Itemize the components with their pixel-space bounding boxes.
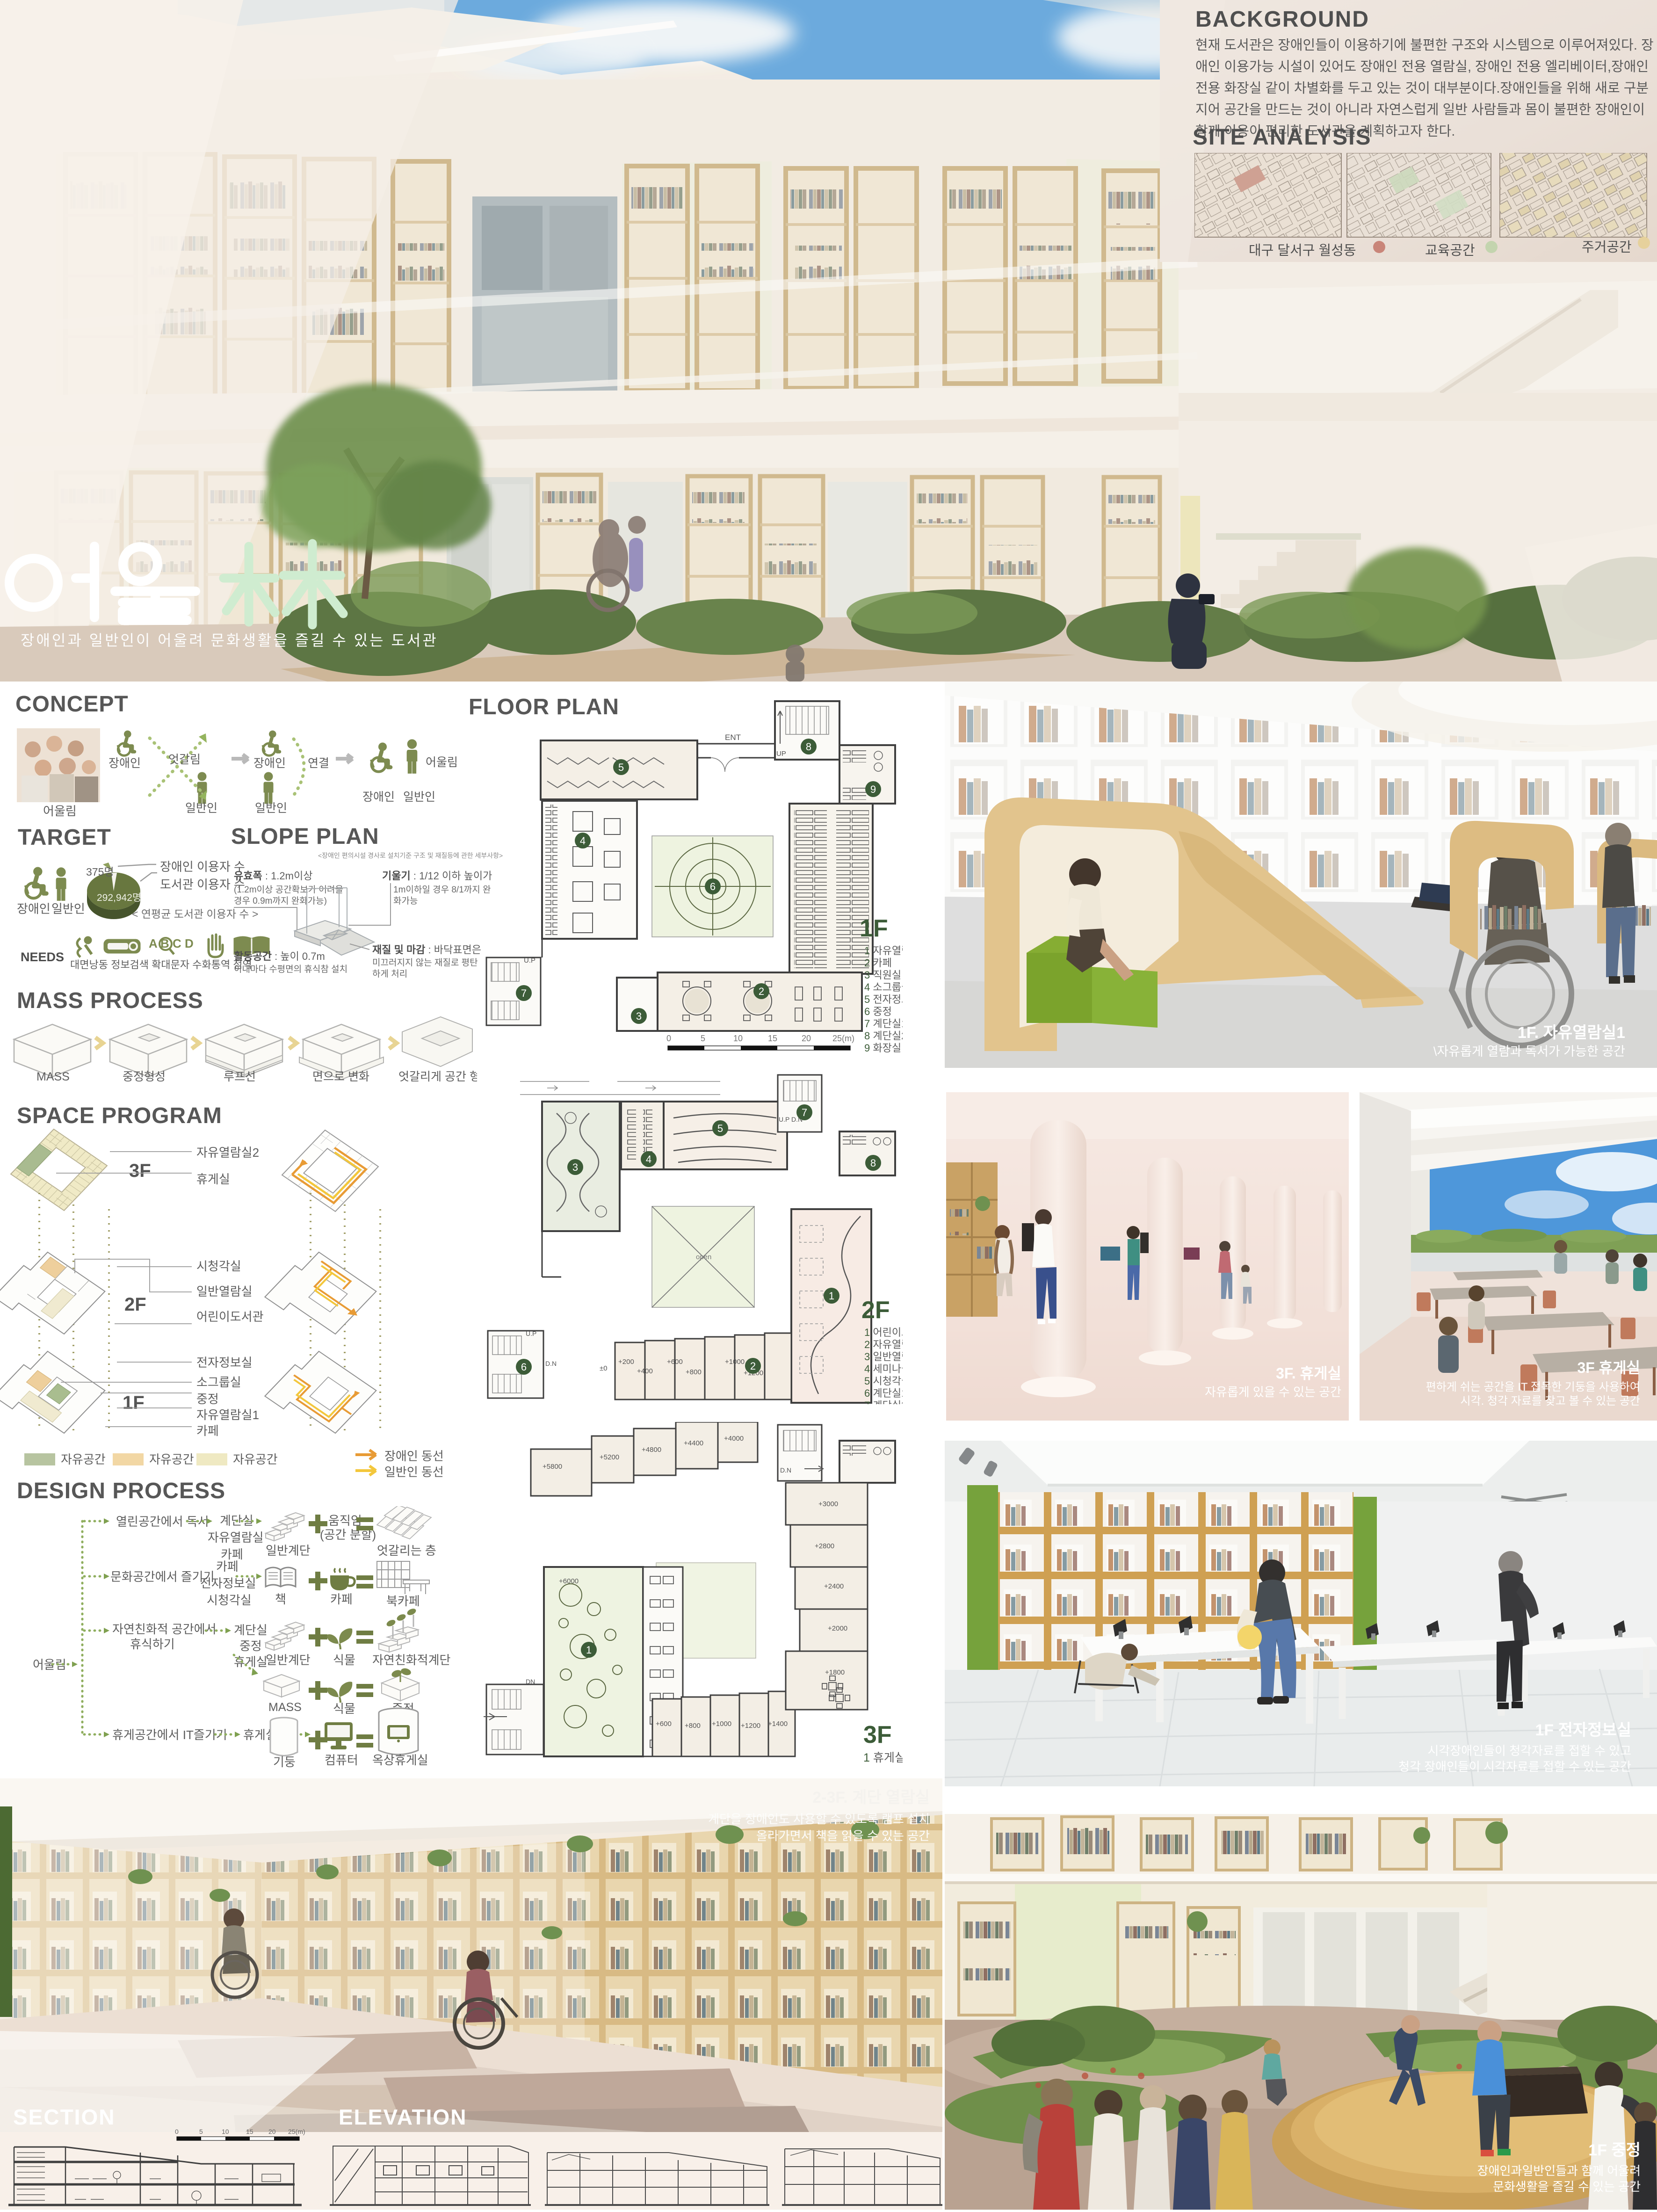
svg-text:1 휴게실: 1 휴게실 bbox=[863, 1751, 903, 1764]
svg-text:자유열람실: 자유열람실 bbox=[208, 1530, 264, 1545]
svg-text:292,942명: 292,942명 bbox=[97, 892, 141, 903]
svg-text:자유공간: 자유공간 bbox=[149, 1452, 194, 1466]
svg-text:0: 0 bbox=[666, 1034, 671, 1043]
svg-text:+5200: +5200 bbox=[600, 1453, 619, 1461]
svg-text:7 계단실1: 7 계단실1 bbox=[864, 1018, 903, 1030]
svg-text:9 화장실: 9 화장실 bbox=[864, 1042, 901, 1054]
svg-text:+4800: +4800 bbox=[642, 1446, 661, 1454]
svg-text:7: 7 bbox=[802, 1107, 807, 1118]
svg-text:자유공간: 자유공간 bbox=[61, 1452, 106, 1466]
svg-text:3F: 3F bbox=[129, 1160, 151, 1181]
svg-text:일반인: 일반인 bbox=[403, 791, 435, 804]
svg-text:면으로 변화: 면으로 변화 bbox=[312, 1070, 369, 1083]
svg-text:2-3F. 계단 열람실: 2-3F. 계단 열람실 bbox=[812, 1789, 930, 1806]
svg-text:장애인: 장애인 bbox=[17, 902, 51, 916]
svg-text:6 계단실1: 6 계단실1 bbox=[864, 1387, 903, 1399]
svg-text:20: 20 bbox=[802, 1034, 811, 1043]
svg-text:+400: +400 bbox=[637, 1367, 653, 1375]
svg-text:+1200: +1200 bbox=[741, 1722, 760, 1730]
svg-text:문화공간에서 즐기기: 문화공간에서 즐기기 bbox=[110, 1570, 215, 1584]
svg-text:일반인: 일반인 bbox=[185, 802, 217, 815]
svg-text:경우 0.9m까지 완화가능): 경우 0.9m까지 완화가능) bbox=[234, 896, 327, 906]
svg-text:북카페: 북카페 bbox=[386, 1594, 420, 1608]
svg-text:연결: 연결 bbox=[308, 757, 329, 770]
svg-text:6 중정: 6 중정 bbox=[864, 1006, 892, 1017]
svg-text:25(m): 25(m) bbox=[288, 2128, 305, 2135]
svg-text:4 소그룹실: 4 소그룹실 bbox=[864, 981, 903, 993]
svg-text:+800: +800 bbox=[685, 1722, 701, 1730]
svg-text:3F: 3F bbox=[863, 1721, 892, 1748]
svg-text:1F. 자유열람실1: 1F. 자유열람실1 bbox=[1518, 1024, 1625, 1042]
svg-text:휴식하기: 휴식하기 bbox=[130, 1637, 175, 1651]
svg-text:이내마다 수평면의 휴식참 설치: 이내마다 수평면의 휴식참 설치 bbox=[234, 964, 347, 974]
svg-text:장애인 동선: 장애인 동선 bbox=[384, 1449, 444, 1463]
svg-text:기둥: 기둥 bbox=[273, 1755, 296, 1769]
svg-text:10: 10 bbox=[733, 1034, 743, 1043]
svg-text:0: 0 bbox=[175, 2128, 179, 2135]
svg-text:ELEVATION: ELEVATION bbox=[339, 2105, 467, 2129]
svg-text:25(m): 25(m) bbox=[832, 1034, 854, 1043]
svg-text:기울기 : 1/12 이하 높이가: 기울기 : 1/12 이하 높이가 bbox=[382, 870, 492, 882]
svg-text:일반인 동선: 일반인 동선 bbox=[384, 1465, 444, 1479]
svg-text:1F 중정: 1F 중정 bbox=[1588, 2141, 1641, 2159]
svg-text:8: 8 bbox=[806, 741, 811, 753]
svg-text:4: 4 bbox=[646, 1153, 651, 1165]
svg-text:5: 5 bbox=[618, 762, 624, 773]
svg-text:1: 1 bbox=[829, 1290, 834, 1302]
svg-text:MASS: MASS bbox=[268, 1701, 302, 1714]
svg-text:어울림: 어울림 bbox=[426, 756, 458, 769]
svg-text:+5800: +5800 bbox=[543, 1463, 562, 1471]
svg-text:3F. 휴게실: 3F. 휴게실 bbox=[1276, 1365, 1341, 1382]
svg-text:열린공간에서 독서: 열린공간에서 독서 bbox=[116, 1515, 209, 1529]
svg-text:9: 9 bbox=[870, 783, 876, 795]
svg-text:일반인: 일반인 bbox=[51, 902, 85, 916]
svg-text:시청각실: 시청각실 bbox=[196, 1259, 241, 1273]
svg-text:+600: +600 bbox=[667, 1358, 683, 1366]
svg-text:+4400: +4400 bbox=[684, 1439, 703, 1447]
svg-text:2 카페: 2 카페 bbox=[864, 957, 892, 969]
svg-text:계단을 장애인도 사용할 수 있도록 램프 설치: 계단을 장애인도 사용할 수 있도록 램프 설치 bbox=[708, 1812, 930, 1826]
svg-text:ENT: ENT bbox=[725, 733, 741, 742]
svg-text:20: 20 bbox=[268, 2128, 276, 2135]
svg-text:8 계단실2: 8 계단실2 bbox=[864, 1030, 903, 1042]
svg-text:식물: 식물 bbox=[333, 1653, 355, 1667]
svg-text:+600: +600 bbox=[656, 1720, 672, 1728]
svg-text:3 직원실: 3 직원실 bbox=[864, 969, 901, 981]
svg-text:+1800: +1800 bbox=[825, 1668, 845, 1676]
svg-text:MASS: MASS bbox=[36, 1070, 70, 1083]
svg-text:2 자유열람실2: 2 자유열람실2 bbox=[864, 1339, 903, 1350]
svg-text:8: 8 bbox=[870, 1157, 876, 1169]
svg-text:컴퓨터: 컴퓨터 bbox=[325, 1753, 358, 1767]
svg-text:5 전자정보실: 5 전자정보실 bbox=[864, 994, 903, 1005]
svg-text:자연친화적 공간에서: 자연친화적 공간에서 bbox=[112, 1622, 217, 1636]
svg-text:+3000: +3000 bbox=[818, 1500, 838, 1508]
svg-text:2: 2 bbox=[750, 1360, 756, 1372]
svg-text:NEEDS: NEEDS bbox=[21, 950, 64, 964]
svg-text:장애인: 장애인 bbox=[109, 757, 141, 770]
svg-text:6: 6 bbox=[710, 881, 716, 892]
svg-text:자유공간: 자유공간 bbox=[233, 1452, 278, 1466]
svg-text:6: 6 bbox=[521, 1361, 527, 1373]
svg-text:7 계단실2: 7 계단실2 bbox=[864, 1400, 903, 1404]
svg-text:계단실: 계단실 bbox=[234, 1623, 268, 1637]
svg-text:옥상휴게실: 옥상휴게실 bbox=[372, 1753, 428, 1767]
svg-text:+2800: +2800 bbox=[815, 1542, 834, 1550]
svg-text:자유롭게 있을 수 있는 공간: 자유롭게 있을 수 있는 공간 bbox=[1205, 1385, 1341, 1399]
svg-text:휴게실: 휴게실 bbox=[234, 1655, 268, 1669]
svg-text:D.N: D.N bbox=[545, 1360, 557, 1367]
svg-text:±0: ±0 bbox=[600, 1364, 608, 1372]
svg-text:유효폭 : 1.2m이상: 유효폭 : 1.2m이상 bbox=[234, 870, 312, 882]
svg-text:+6000: +6000 bbox=[559, 1577, 579, 1585]
svg-text:D.N: D.N bbox=[780, 1466, 791, 1474]
svg-text:5: 5 bbox=[701, 1034, 705, 1043]
svg-text:재질 및 마감 : 바닥표면은: 재질 및 마감 : 바닥표면은 bbox=[372, 944, 481, 956]
svg-text:1 자유열람실: 1 자유열람실 bbox=[864, 945, 903, 957]
svg-text:3F 휴게실: 3F 휴게실 bbox=[1577, 1359, 1640, 1376]
svg-text:4: 4 bbox=[580, 835, 586, 847]
svg-text:카페: 카페 bbox=[216, 1559, 239, 1574]
svg-text:일반열람실: 일반열람실 bbox=[196, 1284, 253, 1298]
svg-text:3: 3 bbox=[636, 1010, 642, 1022]
svg-text:1 어린이도서관: 1 어린이도서관 bbox=[864, 1327, 903, 1338]
svg-text:일반계단: 일반계단 bbox=[266, 1653, 311, 1667]
svg-text:+200: +200 bbox=[618, 1358, 634, 1366]
svg-text:자유열람실2: 자유열람실2 bbox=[196, 1146, 259, 1160]
svg-text:어울림: 어울림 bbox=[33, 1658, 66, 1672]
svg-text:open: open bbox=[696, 1253, 711, 1261]
svg-text:편하게 쉬는 공간을 IT 접목한 기둥을 사용하여: 편하게 쉬는 공간을 IT 접목한 기둥을 사용하여 bbox=[1426, 1381, 1640, 1393]
svg-text:엇갈리는 층: 엇갈리는 층 bbox=[377, 1544, 436, 1558]
svg-text:소그룹실: 소그룹실 bbox=[196, 1375, 241, 1389]
svg-text:7: 7 bbox=[521, 987, 527, 999]
svg-text:1F: 1F bbox=[123, 1392, 145, 1413]
svg-text:+1400: +1400 bbox=[768, 1720, 788, 1728]
svg-text:\자유롭게 열람과 독서가 가능한 공간: \자유롭게 열람과 독서가 가능한 공간 bbox=[1433, 1044, 1625, 1059]
svg-text:2: 2 bbox=[759, 986, 764, 997]
svg-text:+800: +800 bbox=[686, 1368, 702, 1376]
svg-text:전자정보실: 전자정보실 bbox=[200, 1576, 256, 1590]
svg-text:2F: 2F bbox=[124, 1294, 146, 1315]
svg-text:루프선: 루프선 bbox=[224, 1070, 256, 1083]
svg-text:시각. 청각 자료를 찾고 볼 수 있는 공간: 시각. 청각 자료를 찾고 볼 수 있는 공간 bbox=[1460, 1395, 1640, 1407]
svg-text:엇갈림: 엇갈림 bbox=[168, 753, 201, 766]
svg-text:장애인: 장애인 bbox=[362, 791, 395, 804]
svg-text:15: 15 bbox=[768, 1034, 777, 1043]
svg-text:중정형성: 중정형성 bbox=[123, 1070, 166, 1083]
svg-text:자연친화적계단: 자연친화적계단 bbox=[372, 1653, 451, 1667]
svg-text:4 세미나실: 4 세미나실 bbox=[864, 1363, 903, 1375]
svg-text:장애인: 장애인 bbox=[253, 757, 286, 770]
svg-text:화가능: 화가능 bbox=[393, 896, 418, 906]
svg-text:DN: DN bbox=[526, 1678, 535, 1685]
svg-text:휴게실: 휴게실 bbox=[196, 1172, 230, 1186]
svg-text:시청각실: 시청각실 bbox=[207, 1593, 252, 1607]
svg-text:2F: 2F bbox=[861, 1297, 890, 1324]
svg-text:<장애인 편의시설 경사로 설치기준 구조 및 재질등에: <장애인 편의시설 경사로 설치기준 구조 및 재질등에 관한 세부사항> bbox=[318, 852, 503, 859]
svg-text:중정: 중정 bbox=[196, 1392, 219, 1406]
svg-text:SECTION: SECTION bbox=[13, 2105, 115, 2129]
svg-text:3: 3 bbox=[572, 1161, 578, 1173]
svg-text:일반계단: 일반계단 bbox=[266, 1544, 311, 1558]
svg-text:일반인: 일반인 bbox=[255, 802, 287, 815]
svg-text:1F 전자정보실: 1F 전자정보실 bbox=[1535, 1721, 1631, 1739]
svg-text:UP: UP bbox=[776, 750, 786, 758]
svg-text:+2000: +2000 bbox=[828, 1625, 847, 1632]
svg-text:어울림: 어울림 bbox=[43, 804, 77, 818]
svg-text:375명: 375명 bbox=[86, 866, 114, 878]
svg-text:청각 장애인들이 시각자료를 접할 수 있는 공간: 청각 장애인들이 시각자료를 접할 수 있는 공간 bbox=[1398, 1760, 1631, 1774]
svg-text:5: 5 bbox=[199, 2128, 203, 2135]
svg-text:+2400: +2400 bbox=[824, 1582, 844, 1590]
svg-text:시각장애인들이 청각자료를 접할 수 있고: 시각장애인들이 청각자료를 접할 수 있고 bbox=[1427, 1744, 1631, 1758]
svg-text:카페: 카페 bbox=[196, 1424, 219, 1438]
svg-text:미끄러지지 않는 재질로 평탄: 미끄러지지 않는 재질로 평탄 bbox=[372, 957, 478, 968]
svg-text:카페: 카페 bbox=[330, 1592, 353, 1606]
svg-text:1: 1 bbox=[586, 1644, 592, 1656]
svg-text:어린이도서관: 어린이도서관 bbox=[196, 1310, 264, 1324]
svg-text:3 일반열람실: 3 일반열람실 bbox=[864, 1351, 903, 1363]
svg-text:10: 10 bbox=[222, 2128, 229, 2135]
svg-text:하게 처리: 하게 처리 bbox=[372, 969, 407, 978]
svg-text:문화생활을 즐길 수 있는 공간: 문화생활을 즐길 수 있는 공간 bbox=[1493, 2180, 1641, 2194]
svg-text:+1000: +1000 bbox=[712, 1720, 731, 1728]
svg-text:1F: 1F bbox=[860, 915, 888, 942]
svg-text:1m이하일 경우 8/1까지 완: 1m이하일 경우 8/1까지 완 bbox=[393, 885, 491, 895]
svg-text:올라가면서 책을 읽을 수 있는 공간: 올라가면서 책을 읽을 수 있는 공간 bbox=[756, 1829, 930, 1843]
svg-text:엇갈리게 공간 형성: 엇갈리게 공간 형성 bbox=[398, 1070, 477, 1083]
svg-text:(1.2m이상 공간확보가 어려울: (1.2m이상 공간확보가 어려울 bbox=[234, 885, 343, 895]
svg-text:식물: 식물 bbox=[333, 1702, 355, 1716]
svg-text:휴게공간에서 IT즐기기: 휴게공간에서 IT즐기기 bbox=[112, 1728, 227, 1742]
svg-text:중정: 중정 bbox=[239, 1639, 262, 1653]
svg-text:5: 5 bbox=[717, 1123, 723, 1134]
svg-text:U.P: U.P bbox=[526, 1330, 536, 1337]
svg-text:15: 15 bbox=[246, 2128, 253, 2135]
svg-text:+1000: +1000 bbox=[725, 1358, 745, 1366]
svg-text:U.P: U.P bbox=[524, 957, 535, 965]
svg-text:책: 책 bbox=[275, 1592, 286, 1606]
svg-text:+4000: +4000 bbox=[724, 1435, 744, 1443]
svg-text:장애인과일반인들과 함께 어울려: 장애인과일반인들과 함께 어울려 bbox=[1477, 2164, 1641, 2178]
svg-text:5 시청각실: 5 시청각실 bbox=[864, 1375, 903, 1387]
svg-text:자유열람실1: 자유열람실1 bbox=[196, 1408, 259, 1422]
svg-text:전자정보실: 전자정보실 bbox=[196, 1356, 253, 1370]
